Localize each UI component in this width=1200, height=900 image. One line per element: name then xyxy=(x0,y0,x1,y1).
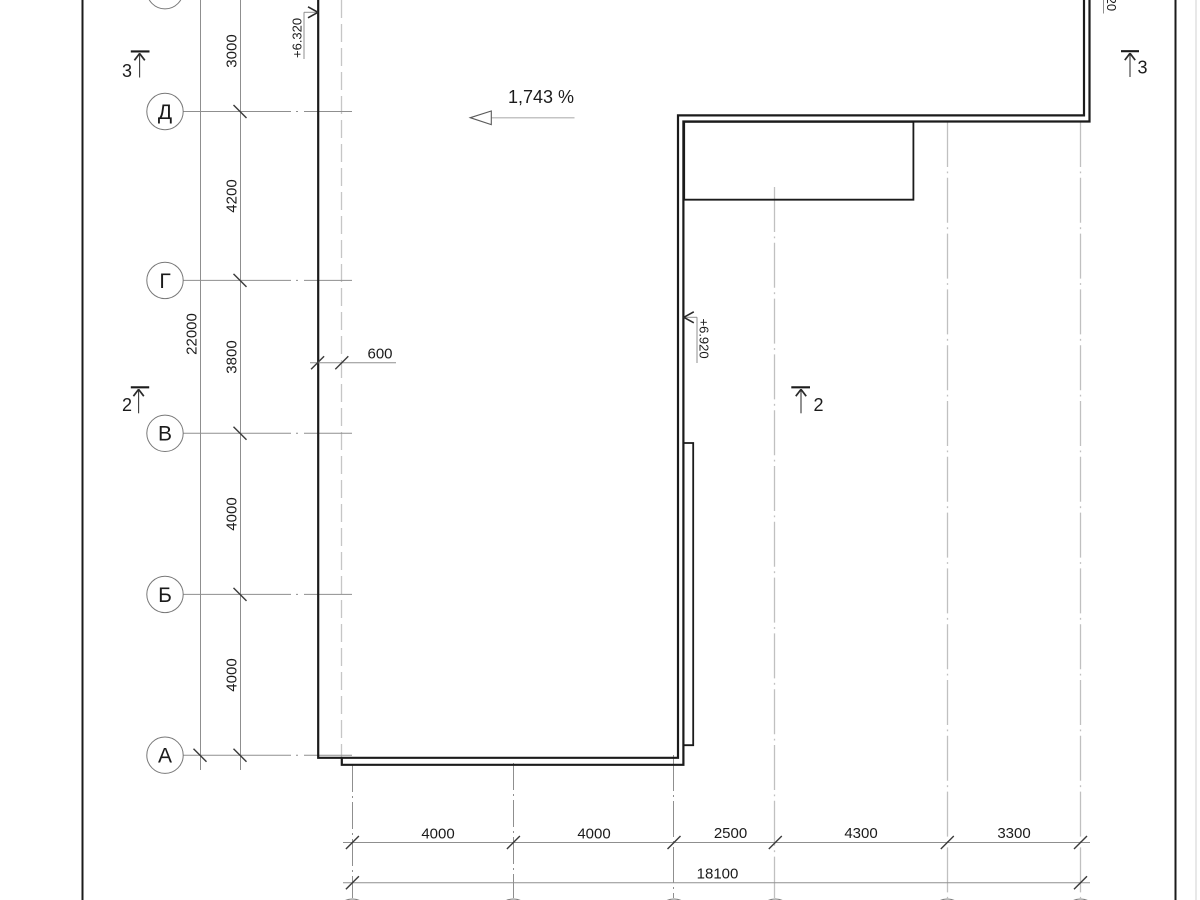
svg-text:4200: 4200 xyxy=(224,179,241,212)
svg-text:600: 600 xyxy=(367,346,392,363)
svg-text:4000: 4000 xyxy=(224,497,241,530)
svg-text:4000: 4000 xyxy=(577,826,610,843)
svg-text:+6.320: +6.320 xyxy=(290,18,305,58)
svg-text:В: В xyxy=(158,423,172,446)
svg-text:А: А xyxy=(158,745,172,768)
svg-text:4000: 4000 xyxy=(421,826,454,843)
svg-text:2: 2 xyxy=(814,395,824,415)
svg-text:4300: 4300 xyxy=(844,825,877,842)
svg-text:1,743 %: 1,743 % xyxy=(508,87,574,107)
svg-text:Б: Б xyxy=(158,584,172,607)
svg-text:+6.920: +6.920 xyxy=(697,319,712,359)
svg-text:3800: 3800 xyxy=(224,340,241,373)
svg-text:3300: 3300 xyxy=(997,825,1030,842)
svg-text:18100: 18100 xyxy=(697,866,739,883)
svg-text:22000: 22000 xyxy=(184,313,201,355)
svg-text:2500: 2500 xyxy=(714,825,747,842)
svg-text:3: 3 xyxy=(1138,58,1148,78)
svg-text:Г: Г xyxy=(159,270,170,293)
svg-text:Д: Д xyxy=(158,101,172,124)
svg-text:4000: 4000 xyxy=(224,658,241,691)
svg-text:3000: 3000 xyxy=(224,34,241,67)
svg-text:3: 3 xyxy=(122,61,132,81)
svg-text:2: 2 xyxy=(122,395,132,415)
svg-text:+6.920: +6.920 xyxy=(1104,0,1119,11)
